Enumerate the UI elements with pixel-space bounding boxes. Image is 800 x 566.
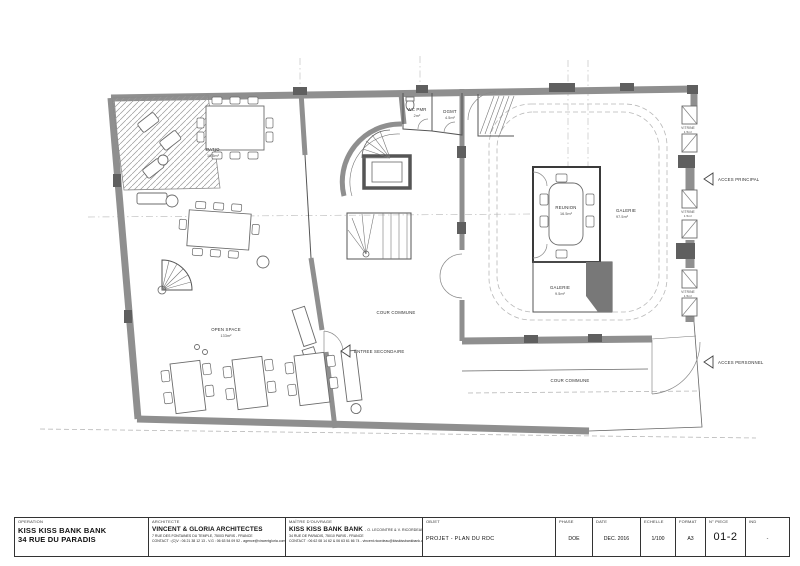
room-label-wc-pmr: WC PMR: [407, 107, 426, 112]
room-area-dgmt: 4.5m²: [445, 116, 456, 120]
spiral-stair: [158, 260, 192, 294]
format-header: FORMAT: [679, 519, 702, 524]
operation-line2: 34 RUE DU PARADIS: [18, 536, 145, 545]
titleblock-cell-phase: PHASE DOE: [555, 518, 592, 556]
room-label-open-space: OPEN SPACE: [211, 327, 241, 332]
date-header: DATE: [596, 519, 637, 524]
maitre-ouvrage-header: MAÎTRE D'OUVRAGE: [289, 519, 419, 524]
room-label-dgmt: DGMT: [443, 109, 457, 114]
cour-commune-bottom-label: COUR COMMUNE: [551, 378, 590, 383]
piece-header: N° PIECE: [709, 519, 742, 524]
room-area-patio: 16.5m²: [207, 154, 220, 158]
acces-personnel-arrow-icon: [704, 356, 713, 368]
titleblock-cell-format: FORMAT A3: [675, 518, 705, 556]
maitre-ouvrage-name-text: KISS KISS BANK BANK: [289, 526, 363, 533]
floor-plan-drawing: PATIO 16.5m² OPEN SPACE 133m² WC PMR 2m²…: [0, 0, 800, 517]
objet-value: PROJET - PLAN DU RDC: [426, 536, 552, 542]
architecte-address: 7 RUE DES FONTAINES DU TEMPLE, 75003 PAR…: [152, 534, 282, 538]
maitre-ouvrage-contact: CONTACT : 06 62 08 14 62 & 06 63 61 66 7…: [289, 539, 419, 543]
title-block: OPERATION KISS KISS BANK BANK 34 RUE DU …: [14, 517, 790, 557]
titleblock-cell-piece: N° PIECE 01-2: [705, 518, 745, 556]
objet-header: OBJET: [426, 519, 552, 524]
maitre-ouvrage-name: KISS KISS BANK BANK - O. LECOINTRE & V. …: [289, 526, 419, 533]
phase-value: DOE: [559, 536, 589, 542]
date-value: DEC. 2016: [596, 536, 637, 542]
echelle-value: 1/100: [644, 536, 672, 542]
phase-header: PHASE: [559, 519, 589, 524]
ind-value: -: [749, 536, 786, 542]
room-area-galerie-small: 9.5m²: [555, 292, 566, 296]
room-label-patio: PATIO: [206, 147, 220, 152]
room-area-galerie: 97.5m²: [616, 215, 629, 219]
room-area-open-space: 133m²: [221, 334, 233, 338]
acces-principal-label: ACCES PRINCIPAL: [718, 177, 760, 182]
room-area-vitrine-3: 1.5m²: [684, 294, 692, 298]
ind-header: IND: [749, 519, 786, 524]
drawing-sheet: { "palette": { "wall_gray": "#8f8f8f", "…: [0, 0, 800, 566]
room-label-galerie-small: GALERIE: [550, 285, 570, 290]
maitre-ouvrage-sub: - O. LECOINTRE & V. RICORDEAU: [365, 528, 422, 532]
acces-personnel-label: ACCES PERSONNEL: [718, 360, 764, 365]
room-area-wc-pmr: 2m²: [414, 114, 421, 118]
operation-header: OPERATION: [18, 519, 145, 524]
acces-principal-arrow-icon: [704, 173, 713, 185]
room-area-vitrine-1: 1.5m²: [684, 130, 692, 134]
room-label-galerie: GALERIE: [616, 208, 636, 213]
galerie-wing: [468, 92, 697, 320]
architecte-header: ARCHITECTE: [152, 519, 282, 524]
titleblock-cell-operation: OPERATION KISS KISS BANK BANK 34 RUE DU …: [14, 518, 148, 556]
room-area-vitrine-2: 1.5m²: [684, 214, 692, 218]
room-label-reunion: REUNION: [555, 205, 576, 210]
titleblock-cell-echelle: ECHELLE 1/100: [640, 518, 675, 556]
titleblock-cell-maitre-ouvrage: MAÎTRE D'OUVRAGE KISS KISS BANK BANK - O…: [285, 518, 422, 556]
courtyards: [462, 340, 700, 394]
patio-area: [112, 95, 220, 207]
maitre-ouvrage-address: 34 RUE DE PARADIS, 75010 PARIS - FRANCE: [289, 534, 419, 538]
echelle-header: ECHELLE: [644, 519, 672, 524]
cour-commune-center-label: COUR COMMUNE: [377, 310, 416, 315]
piece-value: 01-2: [709, 531, 742, 543]
format-value: A3: [679, 536, 702, 542]
titleblock-cell-objet: OBJET PROJET - PLAN DU RDC: [422, 518, 555, 556]
entree-secondaire-label: ENTREE SECONDAIRE: [354, 349, 404, 354]
architecte-name: VINCENT & GLORIA ARCHITECTES: [152, 526, 282, 533]
architecte-contact: CONTACT : (C)V : 06 21 38 12 13 - V.G : …: [152, 539, 282, 543]
titleblock-cell-date: DATE DEC. 2016: [592, 518, 640, 556]
titleblock-cell-ind: IND -: [745, 518, 790, 556]
room-area-reunion: 16.5m²: [560, 212, 573, 216]
titleblock-cell-architecte: ARCHITECTE VINCENT & GLORIA ARCHITECTES …: [148, 518, 285, 556]
elevator-shaft: [364, 156, 410, 188]
